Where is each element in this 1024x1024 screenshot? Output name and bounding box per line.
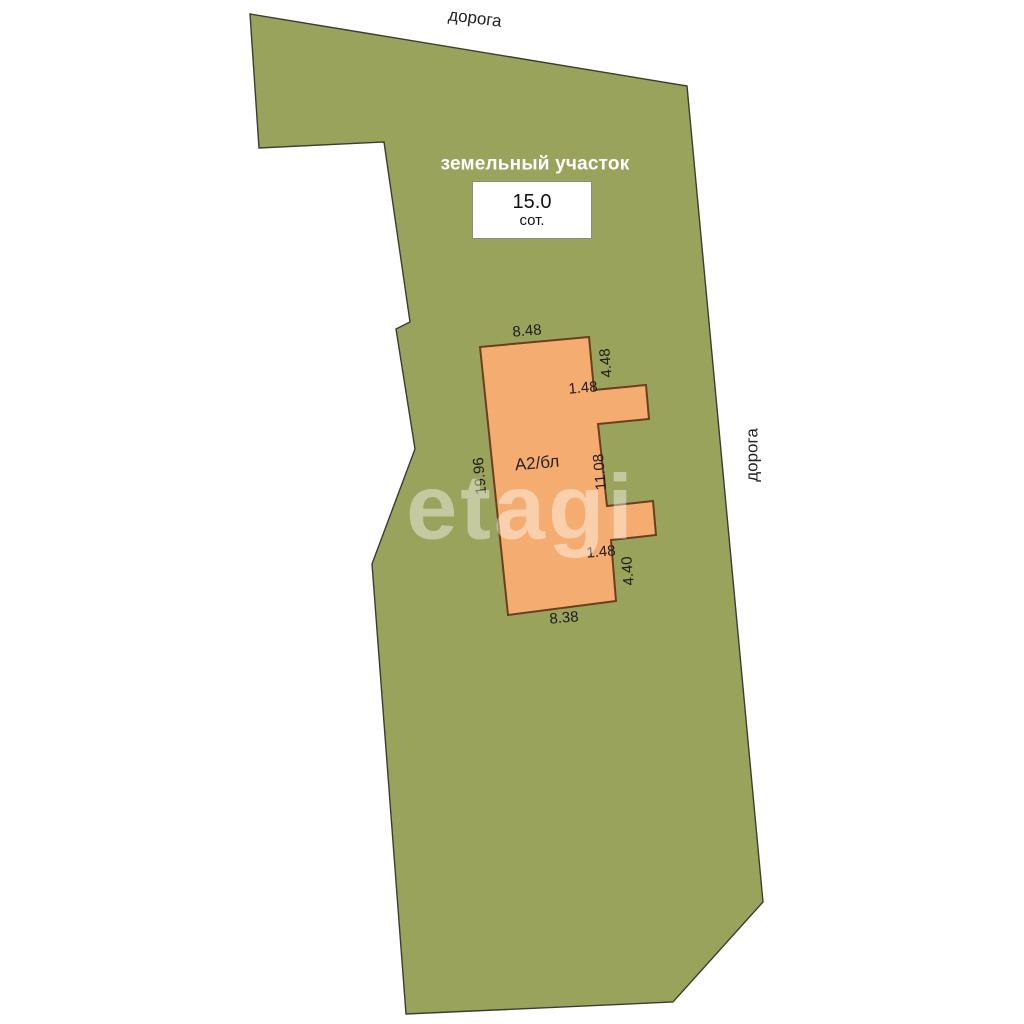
plot-title: земельный участок — [441, 155, 630, 174]
dim-right-upper: 4.48 — [597, 348, 614, 378]
dim-top: 8.48 — [512, 322, 542, 339]
plot-area-box: 15.0 сот. — [472, 181, 592, 239]
dim-notch-top: 1.48 — [568, 379, 598, 396]
dim-right-lower: 4.40 — [619, 556, 636, 586]
building-label: А2/бл — [514, 453, 560, 474]
plot-area-value: 15.0 — [513, 191, 552, 213]
dim-notch-bottom: 1.48 — [586, 543, 616, 560]
dim-bottom: 8.38 — [549, 609, 579, 626]
road-label-right: дорога — [744, 428, 761, 482]
dim-right-middle: 11.08 — [591, 453, 609, 491]
dim-left: 19.96 — [471, 457, 489, 496]
plot-area-unit: сот. — [519, 213, 544, 229]
site-plan: дорога дорога земельный участок 15.0 сот… — [0, 0, 1024, 1024]
